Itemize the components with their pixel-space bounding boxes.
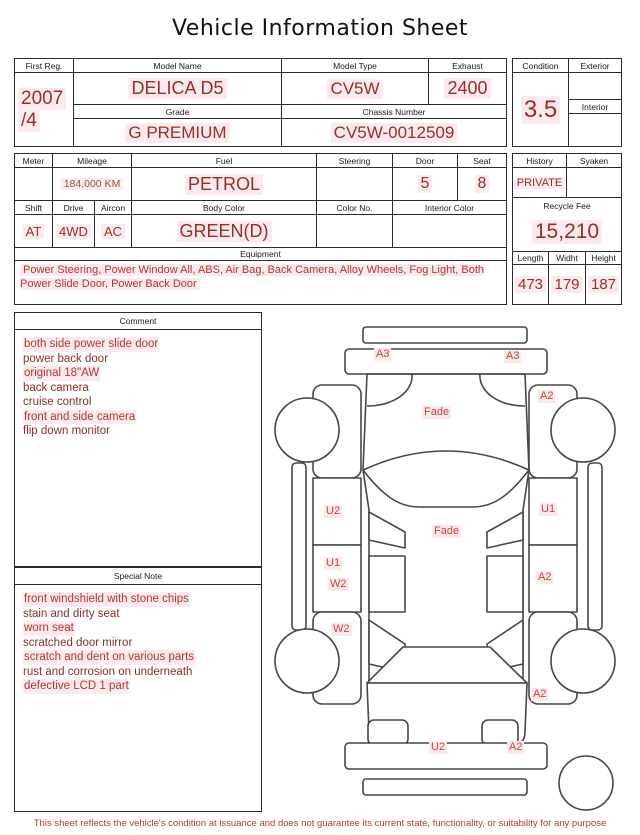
special-note-item: scratched door mirror: [23, 636, 253, 651]
fade-marker-hood: Fade: [422, 406, 451, 419]
spec-table: Meter Mileage Fuel Steering Door Seat 18…: [14, 153, 507, 305]
grade-label: Grade: [74, 105, 282, 119]
comment-item: original 18"AW: [23, 366, 253, 381]
width-value: 179: [549, 265, 586, 304]
exhaust-value: 2400: [429, 73, 506, 105]
seat-value: 8: [458, 168, 506, 201]
comment-item: both side power slide door: [23, 337, 253, 352]
hood-outline: [363, 374, 529, 470]
width-label: Widht: [549, 252, 586, 265]
comment-header: Comment: [15, 313, 261, 330]
aircon-label: Aircon: [95, 201, 132, 215]
chassis-number-value: CV5W-0012509: [282, 119, 506, 146]
damage-marker-a2-fender-right: A2: [538, 390, 555, 403]
recycle-fee-value: 15,210: [513, 213, 621, 252]
car-damage-diagram: A3 A3 A2 Fade U2 U1 Fade U1 W2 A2 W2 A2 …: [266, 312, 640, 817]
comment-item: back camera: [23, 381, 253, 396]
fade-marker-roof: Fade: [432, 525, 461, 538]
front-right-wheel: [551, 398, 615, 462]
comment-list: both side power slide door power back do…: [15, 330, 261, 446]
equipment-section: Equipment Power Steering, Power Window A…: [15, 248, 506, 294]
first-reg-label: First Reg.: [15, 59, 74, 73]
right-mid-window: [487, 556, 523, 612]
condition-panel: Condition Exterior 3.5 Interior: [512, 58, 622, 147]
syaken-value: [567, 168, 621, 198]
height-label: Height: [586, 252, 621, 265]
front-bumper-upper: [363, 327, 527, 343]
comment-item: power back door: [23, 352, 253, 367]
color-no-value: [317, 215, 393, 248]
exhaust-label: Exhaust: [429, 59, 506, 73]
damage-marker-w2-quarter-left: W2: [331, 623, 352, 636]
first-reg-year: 2007: [18, 88, 66, 110]
damage-marker-u2-door-left: U2: [324, 505, 342, 518]
special-note-item: scratch and dent on various parts: [23, 650, 253, 665]
vehicle-information-sheet: Vehicle Information Sheet First Reg. Mod…: [0, 0, 640, 835]
special-note-item: worn seat: [23, 621, 253, 636]
door-value: 5: [393, 168, 458, 201]
body-color-value: GREEN(D): [132, 215, 317, 248]
damage-marker-w2-rear-left: W2: [328, 578, 349, 591]
page-title: Vehicle Information Sheet: [0, 16, 640, 41]
interior-value: [569, 114, 621, 146]
front-left-wheel: [275, 398, 339, 462]
damage-marker-a3-front-right: A3: [504, 350, 521, 363]
equipment-label: Equipment: [15, 248, 506, 261]
model-name-value: DELICA D5: [74, 73, 282, 105]
left-sill: [292, 463, 306, 630]
drive-label: Drive: [53, 201, 95, 215]
equipment-value: Power Steering, Power Window All, ABS, A…: [15, 261, 506, 294]
shift-label: Shift: [15, 201, 53, 215]
interior-label: Interior: [569, 100, 621, 114]
left-tail-light: [368, 720, 408, 745]
door-label: Door: [393, 154, 458, 168]
cabin-left-edge: [363, 470, 369, 683]
history-value: PRIVATE: [513, 168, 567, 198]
body-color-label: Body Color: [132, 201, 317, 215]
special-note-box: Special Note front windshield with stone…: [14, 567, 262, 812]
meter-value: [15, 168, 53, 201]
length-value: 473: [513, 265, 549, 304]
comment-box: Comment both side power slide door power…: [14, 312, 262, 567]
exterior-label: Exterior: [569, 59, 621, 73]
left-headlight-arc: [367, 374, 412, 406]
interior-color-value: [393, 215, 506, 248]
steering-value: [317, 168, 393, 201]
damage-marker-a2-quarter-right: A2: [531, 688, 548, 701]
first-reg-month: /4: [18, 110, 40, 132]
right-headlight-arc: [480, 374, 525, 406]
rear-bumper-lower: [363, 779, 527, 795]
interior-color-label: Interior Color: [393, 201, 506, 215]
special-note-list: front windshield with stone chips stain …: [15, 585, 261, 701]
color-no-label: Color No.: [317, 201, 393, 215]
windshield-top: [363, 451, 529, 470]
special-note-header: Special Note: [15, 568, 261, 585]
height-value: 187: [586, 265, 621, 304]
shift-value: AT: [15, 215, 53, 248]
condition-value: 3.5: [513, 73, 569, 146]
damage-marker-a2-rear-right: A2: [536, 571, 553, 584]
drive-value: 4WD: [53, 215, 95, 248]
damage-marker-u2-rear-bumper: U2: [429, 741, 447, 754]
history-row: History Syaken PRIVATE: [513, 154, 621, 198]
rear-left-wheel: [275, 629, 339, 693]
fuel-label: Fuel: [132, 154, 317, 168]
special-note-item: defective LCD 1 part: [23, 679, 253, 694]
damage-marker-u1-door-right: U1: [539, 503, 557, 516]
spec-row-2: Shift Drive Aircon Body Color Color No. …: [15, 201, 506, 248]
spec-row-1: Meter Mileage Fuel Steering Door Seat 18…: [15, 154, 506, 201]
special-note-item: stain and dirty seat: [23, 607, 253, 622]
right-sill: [588, 463, 602, 630]
grade-value: G PREMIUM: [74, 119, 282, 146]
dimensions-row: Length Widht Height 473 179 187: [513, 252, 621, 304]
history-label: History: [513, 154, 567, 168]
seat-label: Seat: [458, 154, 506, 168]
header-table: First Reg. Model Name Model Type Exhaust…: [14, 58, 507, 147]
cabin-right-edge: [523, 470, 529, 683]
damage-marker-u1-rear-left: U1: [324, 557, 342, 570]
first-reg-value: 2007 /4: [15, 73, 74, 146]
model-type-value: CV5W: [282, 73, 429, 105]
recycle-fee-label: Recycle Fee: [513, 198, 621, 213]
aircon-value: AC: [95, 215, 132, 248]
spare-tire: [559, 756, 613, 810]
comment-item: front and side camera: [23, 410, 253, 425]
rear-right-wheel: [551, 629, 615, 693]
fuel-value: PETROL: [132, 168, 317, 201]
condition-label: Condition: [513, 59, 569, 73]
model-type-label: Model Type: [282, 59, 429, 73]
special-note-item: front windshield with stone chips: [23, 592, 253, 607]
exterior-value: [569, 73, 621, 100]
steering-label: Steering: [317, 154, 393, 168]
chassis-number-label: Chassis Number: [282, 105, 506, 119]
car-outline-drawing: [266, 312, 640, 817]
disclaimer-text: This sheet reflects the vehicle's condit…: [0, 818, 640, 829]
damage-marker-a2-rear-bumper: A2: [507, 741, 524, 754]
comment-item: cruise control: [23, 395, 253, 410]
damage-marker-a3-front-left: A3: [374, 348, 391, 361]
comment-item: flip down monitor: [23, 424, 253, 439]
length-label: Length: [513, 252, 549, 265]
left-mid-window: [369, 556, 405, 612]
mileage-label: Mileage: [53, 154, 132, 168]
windshield-bottom: [363, 470, 529, 507]
mileage-value: 184,000 KM: [53, 168, 132, 201]
left-front-window: [369, 512, 405, 548]
right-front-window: [487, 512, 523, 548]
meter-label: Meter: [15, 154, 53, 168]
syaken-label: Syaken: [567, 154, 621, 168]
special-note-item: rust and corrosion on underneath: [23, 665, 253, 680]
history-panel: History Syaken PRIVATE Recycle Fee 15,21…: [512, 153, 622, 305]
model-name-label: Model Name: [74, 59, 282, 73]
